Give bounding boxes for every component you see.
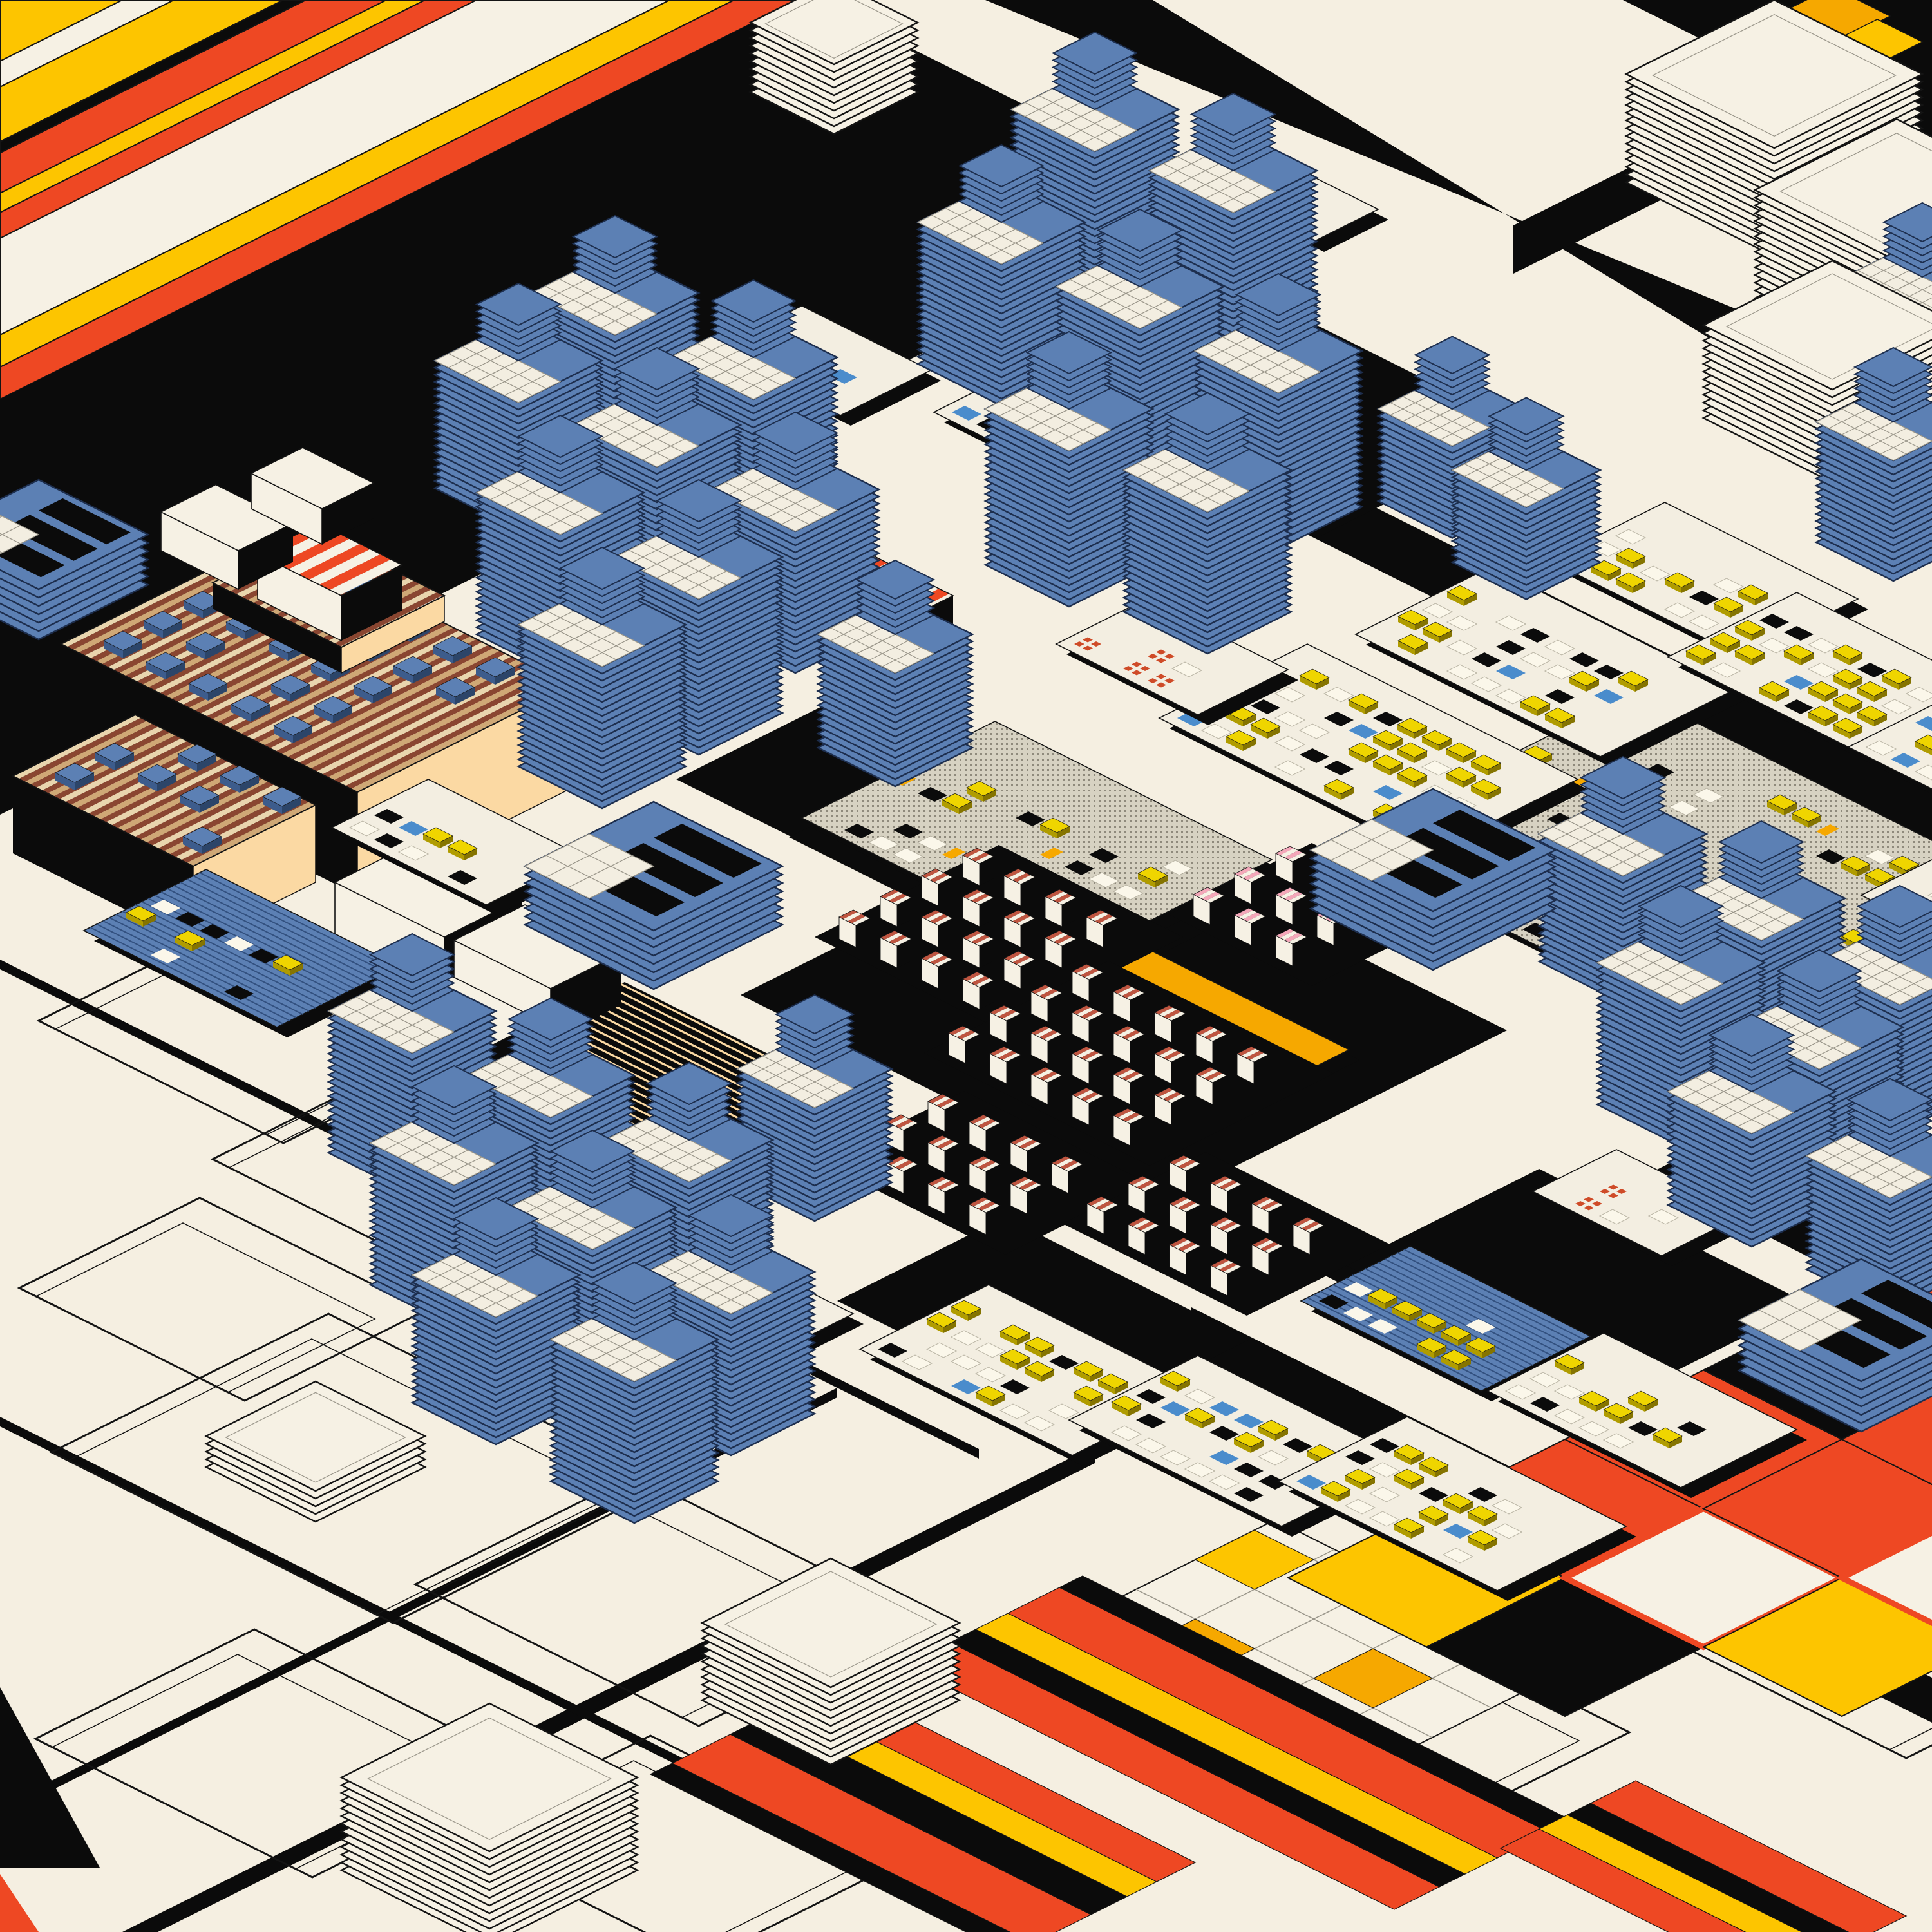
isometric-circuit-city-canvas: [0, 0, 1932, 1932]
isometric-artwork-stage: [0, 0, 1932, 1932]
